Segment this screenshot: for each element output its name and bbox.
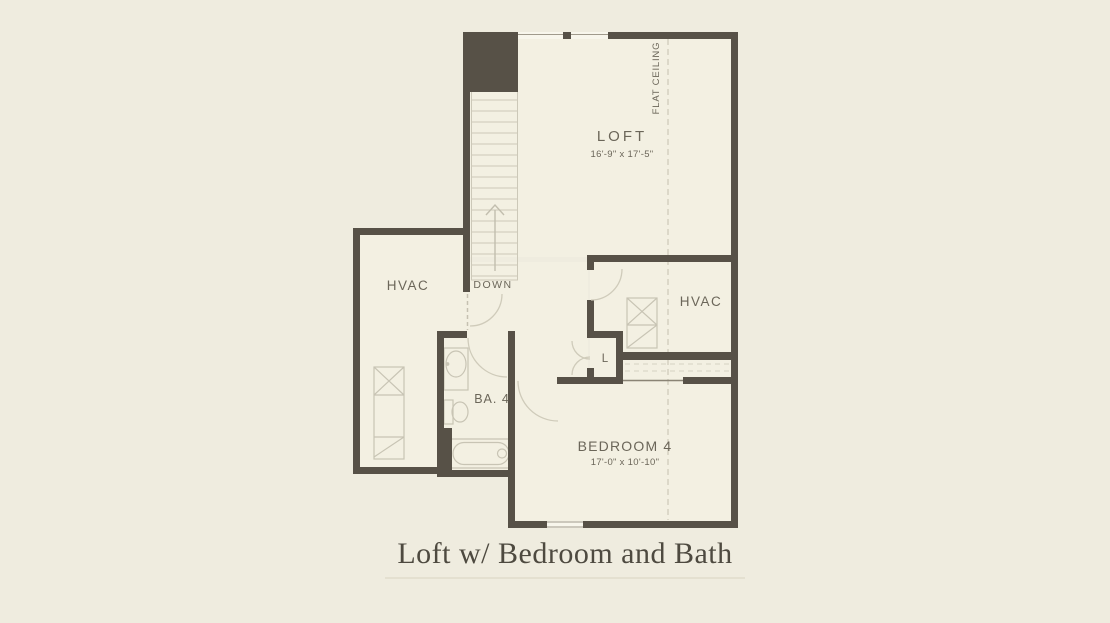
hvac-left-label: HVAC — [387, 278, 430, 293]
loft-label: LOFT — [597, 128, 647, 145]
hvac-right-top-wall — [587, 255, 738, 262]
hvac-left-left-wall — [353, 228, 360, 474]
bath-label: BA. 4 — [474, 392, 510, 406]
plan-title: Loft w/ Bedroom and Bath — [385, 537, 744, 579]
right-wall — [731, 32, 738, 528]
bedroom-window — [547, 521, 583, 528]
hvac-left-bottom-wall — [353, 467, 452, 474]
bath-left-wall — [437, 331, 444, 430]
hvac-right-door-stub — [587, 255, 594, 270]
floorplan-drawing: LOFT 16'-9" x 17'-5" FLAT CEILING HVAC H… — [0, 0, 1110, 623]
loft-window — [518, 32, 608, 39]
stairwell-left-wall — [463, 32, 470, 292]
hvac-right-bottom-wall — [620, 352, 738, 360]
bedroom-top-wall-left — [557, 377, 623, 384]
window-mullion — [563, 32, 571, 39]
stairwell-solid-mass — [463, 32, 518, 92]
stairs-down-label: DOWN — [473, 279, 512, 291]
bedroom-top-wall-right — [683, 377, 738, 384]
floorplan-canvas: LOFT 16'-9" x 17'-5" FLAT CEILING HVAC H… — [0, 0, 1110, 623]
top-wall — [608, 32, 738, 39]
bedroom-dimensions: 17'-0" x 10'-10" — [591, 457, 660, 468]
loft-dimensions: 16'-9" x 17'-5" — [591, 149, 654, 160]
hvac-right-floor — [590, 260, 733, 380]
hvac-right-label: HVAC — [680, 294, 723, 309]
linen-label: L — [602, 353, 609, 365]
flat-ceiling-note: FLAT CEILING — [651, 42, 662, 115]
bedroom-label: BEDROOM 4 — [578, 438, 673, 454]
bedroom-bottom-wall-right — [583, 521, 738, 528]
bedroom-left-wall — [508, 331, 515, 528]
hvac-left-top-wall — [353, 228, 470, 235]
plan-title-wrap: Loft w/ Bedroom and Bath — [0, 537, 1110, 579]
